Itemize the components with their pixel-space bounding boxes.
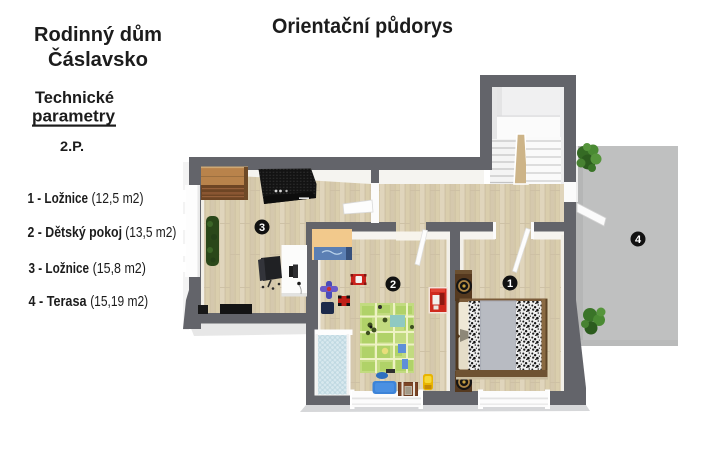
svg-text:4 - Terasa: 4 - Terasa xyxy=(29,293,88,310)
svg-text:2 - Dětský pokoj: 2 - Dětský pokoj xyxy=(28,224,123,241)
svg-text:(15,8 m2): (15,8 m2) xyxy=(93,260,146,277)
svg-text:Orientační půdorys: Orientační půdorys xyxy=(272,15,453,38)
svg-text:4: 4 xyxy=(635,234,642,246)
svg-text:2: 2 xyxy=(390,279,396,291)
svg-text:Rodinný dům: Rodinný dům xyxy=(34,24,162,46)
svg-text:(15,19 m2): (15,19 m2) xyxy=(90,293,148,310)
svg-text:(12,5 m2): (12,5 m2) xyxy=(92,190,144,207)
svg-text:3 - Ložnice: 3 - Ložnice xyxy=(29,260,90,277)
svg-text:3: 3 xyxy=(259,222,265,234)
svg-text:(13,5 m2): (13,5 m2) xyxy=(125,224,176,241)
svg-text:Technické: Technické xyxy=(35,89,114,107)
svg-text:Čáslavsko: Čáslavsko xyxy=(48,47,148,71)
svg-text:1: 1 xyxy=(507,278,513,290)
svg-text:2.P.: 2.P. xyxy=(60,138,84,154)
svg-text:1 - Ložnice: 1 - Ložnice xyxy=(28,190,89,207)
svg-text:parametry: parametry xyxy=(32,108,116,126)
